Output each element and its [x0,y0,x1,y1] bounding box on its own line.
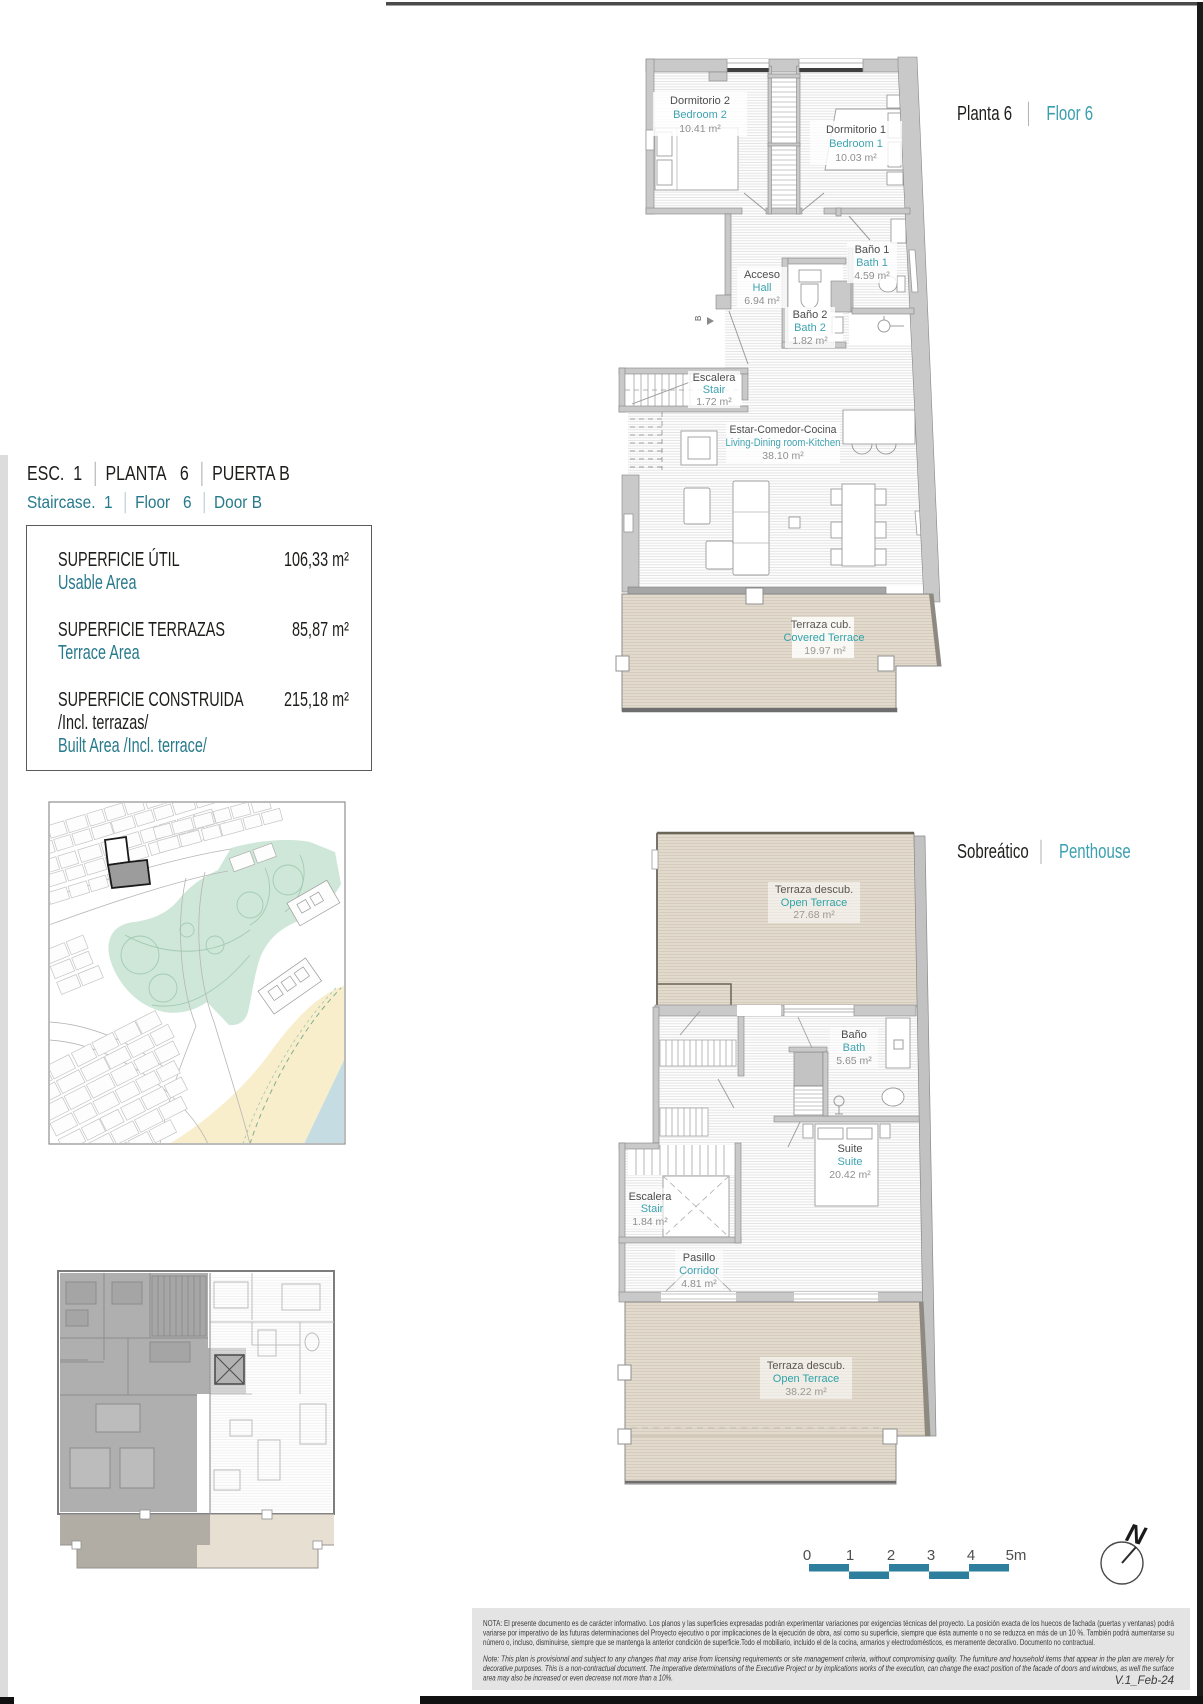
svg-text:1.82 m²: 1.82 m² [792,335,828,347]
svg-text:10.03 m²: 10.03 m² [835,152,877,164]
svg-text:Stair: Stair [703,384,726,396]
svg-text:1.72 m²: 1.72 m² [696,396,732,408]
svg-text:Pasillo: Pasillo [683,1252,715,1264]
svg-text:38.10 m²: 38.10 m² [762,450,804,462]
svg-text:Acceso: Acceso [744,269,780,281]
svg-text:Hall: Hall [753,282,772,294]
svg-text:Suite: Suite [837,1156,862,1168]
svg-text:area may also be increased or: area may also be increased or even decre… [483,1673,673,1683]
svg-text:Bath: Bath [843,1042,866,1054]
svg-text:Dormitorio 1: Dormitorio 1 [826,124,886,136]
svg-text:Escalera: Escalera [693,372,737,384]
svg-text:0: 0 [803,1547,811,1564]
svg-text:Baño 1: Baño 1 [855,244,890,256]
svg-text:Suite: Suite [837,1143,862,1155]
svg-text:10.41 m²: 10.41 m² [679,123,721,135]
svg-text:19.97 m²: 19.97 m² [804,645,846,657]
svg-text:38.22 m²: 38.22 m² [785,1386,827,1398]
svg-text:Note: This plan is provisional: Note: This plan is provisional and subje… [483,1654,1175,1664]
svg-text:27.68 m²: 27.68 m² [793,909,835,921]
svg-text:2: 2 [887,1547,895,1564]
svg-text:5.65 m²: 5.65 m² [836,1055,872,1067]
svg-text:Terraza descub.: Terraza descub. [767,1360,845,1372]
svg-text:4: 4 [967,1547,975,1564]
svg-text:variarse por imperativo de las: variarse por imperativo de las futuras d… [483,1628,1174,1638]
svg-text:Corridor: Corridor [679,1265,719,1277]
svg-text:20.42 m²: 20.42 m² [829,1169,871,1181]
svg-text:1: 1 [846,1547,854,1564]
svg-text:5m: 5m [1006,1547,1027,1564]
svg-text:Estar-Comedor-Cocina: Estar-Comedor-Cocina [730,424,838,436]
svg-text:1.84 m²: 1.84 m² [632,1216,668,1228]
svg-text:NOTA: El presente documento e: NOTA: El presente documento es de caráct… [483,1618,1174,1628]
svg-text:N: N [1123,1517,1150,1551]
svg-text:3: 3 [927,1547,935,1564]
svg-text:Escalera: Escalera [629,1191,673,1203]
svg-text:Stair: Stair [641,1203,664,1215]
svg-text:Bath 1: Bath 1 [856,257,888,269]
svg-text:Dormitorio 2: Dormitorio 2 [670,95,730,107]
svg-text:Living-Dining room-Kitchen: Living-Dining room-Kitchen [726,437,841,449]
svg-text:Terraza cub.: Terraza cub. [791,619,852,631]
svg-text:Baño: Baño [841,1029,867,1041]
svg-text:Baño 2: Baño 2 [793,309,828,321]
svg-text:B: B [694,316,703,321]
svg-text:V.1_Feb-24: V.1_Feb-24 [1115,1675,1174,1687]
svg-text:número o, incluso, disminuirse: número o, incluso, disminuirse, siempre … [483,1637,1095,1647]
svg-text:Bedroom 1: Bedroom 1 [829,138,883,150]
svg-text:4.81 m²: 4.81 m² [681,1278,717,1290]
svg-text:Bedroom 2: Bedroom 2 [673,109,727,121]
svg-text:Open Terrace: Open Terrace [773,1373,839,1385]
svg-text:6.94 m²: 6.94 m² [744,295,780,307]
svg-text:Bath 2: Bath 2 [794,322,826,334]
svg-text:Terraza descub.: Terraza descub. [775,884,853,896]
svg-text:Covered Terrace: Covered Terrace [783,632,864,644]
svg-text:Open Terrace: Open Terrace [781,897,847,909]
svg-text:decorative purposes. This is a: decorative purposes. This is a non-contr… [483,1663,1174,1673]
svg-text:4.59 m²: 4.59 m² [854,270,890,282]
